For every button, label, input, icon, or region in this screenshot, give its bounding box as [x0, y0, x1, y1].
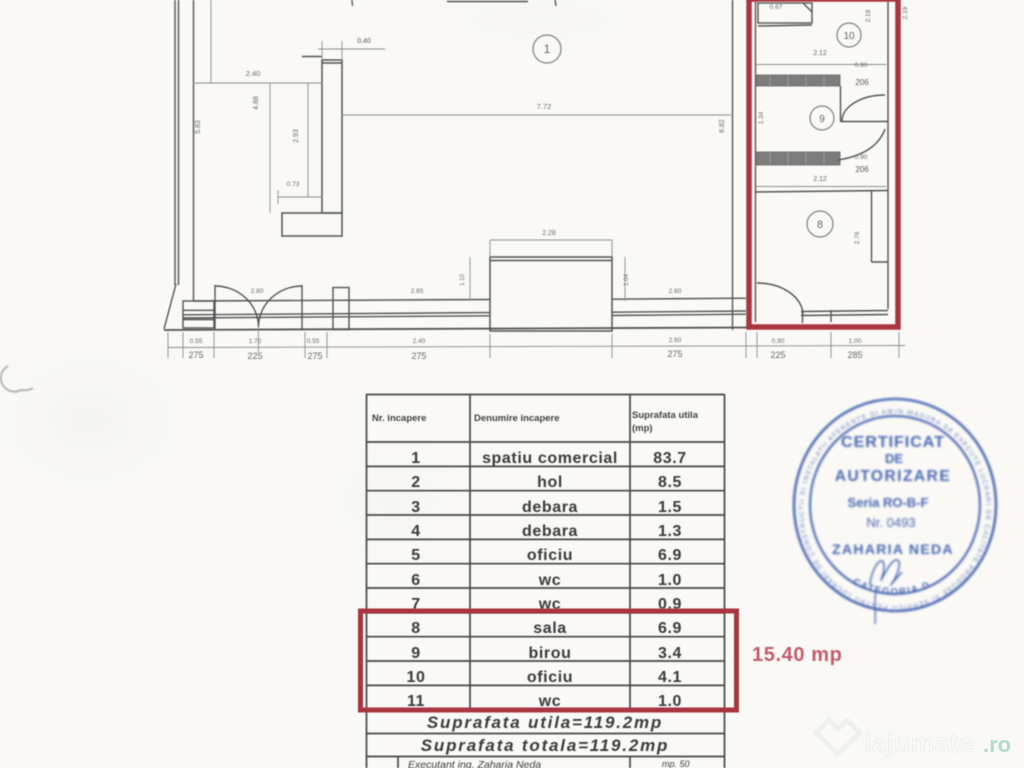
svg-text:0.55: 0.55 — [190, 338, 203, 345]
svg-text:0.73: 0.73 — [287, 181, 300, 188]
svg-text:wc: wc — [538, 572, 562, 589]
svg-text:206: 206 — [855, 165, 869, 174]
svg-text:debara: debara — [522, 499, 578, 516]
svg-text:oficiu: oficiu — [527, 547, 573, 564]
svg-text:285: 285 — [847, 350, 862, 360]
svg-text:206: 206 — [855, 78, 869, 87]
svg-text:0.90: 0.90 — [772, 338, 785, 345]
svg-text:6.82: 6.82 — [719, 119, 726, 133]
svg-text:2.12: 2.12 — [813, 176, 827, 183]
svg-text:2.60: 2.60 — [669, 337, 682, 344]
svg-text:83.7: 83.7 — [653, 450, 687, 467]
svg-text:8: 8 — [411, 620, 421, 637]
svg-text:2.40: 2.40 — [246, 69, 261, 78]
svg-text:wc: wc — [538, 693, 562, 710]
svg-text:2.19: 2.19 — [902, 6, 909, 19]
svg-text:.ro: .ro — [983, 732, 1011, 757]
svg-text:Denumire incapere: Denumire incapere — [474, 413, 560, 424]
svg-text:275: 275 — [307, 351, 322, 361]
svg-text:1.10: 1.10 — [460, 274, 466, 286]
svg-text:Suprafata utila: Suprafata utila — [632, 410, 699, 421]
svg-text:9: 9 — [819, 114, 825, 125]
svg-text:8: 8 — [817, 219, 823, 231]
svg-text:0.67: 0.67 — [770, 4, 783, 11]
svg-text:4: 4 — [411, 523, 421, 540]
svg-text:2: 2 — [411, 474, 421, 491]
svg-text:1: 1 — [411, 450, 421, 467]
svg-text:lajumate: lajumate — [864, 728, 974, 758]
svg-text:0.90: 0.90 — [855, 154, 868, 161]
svg-text:6.9: 6.9 — [658, 620, 682, 637]
svg-text:2.12: 2.12 — [813, 50, 827, 57]
svg-text:2.18: 2.18 — [865, 9, 872, 22]
svg-text:Executant ing. Zaharia Neda: Executant ing. Zaharia Neda — [408, 759, 541, 768]
svg-text:0.40: 0.40 — [357, 38, 371, 45]
svg-text:1.04: 1.04 — [624, 274, 630, 286]
svg-text:7.72: 7.72 — [537, 102, 552, 111]
svg-text:hol: hol — [537, 474, 563, 491]
svg-text:2.40: 2.40 — [413, 338, 426, 345]
svg-text:debara: debara — [522, 523, 578, 540]
svg-text:2.65: 2.65 — [411, 288, 424, 295]
svg-text:(mp): (mp) — [632, 423, 653, 434]
svg-text:9: 9 — [411, 645, 421, 662]
svg-text:2.93: 2.93 — [293, 129, 300, 143]
svg-text:4.1: 4.1 — [658, 669, 682, 686]
svg-text:1.70: 1.70 — [249, 338, 262, 345]
svg-text:1.5: 1.5 — [658, 499, 682, 516]
svg-text:2.60: 2.60 — [669, 288, 682, 295]
svg-text:4.88: 4.88 — [253, 96, 260, 110]
svg-text:275: 275 — [411, 351, 426, 361]
svg-text:1.0: 1.0 — [658, 572, 682, 589]
svg-text:225: 225 — [247, 351, 262, 361]
svg-text:0.55: 0.55 — [307, 338, 320, 345]
svg-text:mp. 50: mp. 50 — [662, 759, 690, 768]
svg-text:10: 10 — [843, 31, 855, 42]
svg-text:5.83: 5.83 — [195, 120, 202, 134]
svg-text:Nr. 0493: Nr. 0493 — [866, 515, 915, 530]
svg-text:275: 275 — [667, 349, 682, 359]
svg-text:275: 275 — [188, 350, 203, 360]
svg-text:1: 1 — [544, 42, 551, 56]
svg-text:6: 6 — [411, 572, 421, 589]
svg-text:sala: sala — [533, 620, 567, 637]
svg-text:2.80: 2.80 — [251, 288, 264, 295]
svg-text:Seria RO-B-F: Seria RO-B-F — [848, 495, 929, 510]
svg-text:2.28: 2.28 — [542, 230, 556, 237]
svg-text:15.40 mp: 15.40 mp — [752, 644, 842, 666]
svg-text:1.00: 1.00 — [849, 338, 862, 345]
svg-text:1.0: 1.0 — [658, 693, 682, 710]
svg-text:Suprafata utila=119.2mp: Suprafata utila=119.2mp — [427, 713, 663, 732]
svg-text:225: 225 — [770, 350, 785, 360]
svg-text:spatiu comercial: spatiu comercial — [482, 450, 618, 467]
svg-text:6.9: 6.9 — [658, 547, 682, 564]
svg-text:birou: birou — [529, 645, 572, 662]
svg-text:Suprafata totala=119.2mp: Suprafata totala=119.2mp — [421, 736, 669, 755]
svg-text:8.5: 8.5 — [658, 474, 682, 491]
svg-text:DE: DE — [885, 451, 903, 466]
svg-text:CERTIFICAT: CERTIFICAT — [841, 434, 945, 451]
svg-text:Nr. incapere: Nr. incapere — [372, 413, 426, 424]
svg-text:5: 5 — [411, 547, 421, 564]
svg-text:ZAHARIA NEDA: ZAHARIA NEDA — [832, 541, 954, 557]
svg-text:3.4: 3.4 — [658, 645, 682, 662]
svg-text:1.3: 1.3 — [658, 523, 682, 540]
svg-text:AUTORIZARE: AUTORIZARE — [835, 468, 951, 485]
svg-text:oficiu: oficiu — [527, 669, 573, 686]
svg-text:10: 10 — [407, 669, 426, 686]
svg-text:2.76: 2.76 — [854, 231, 861, 244]
svg-text:3: 3 — [411, 499, 421, 516]
svg-text:11: 11 — [407, 693, 425, 710]
svg-text:1.34: 1.34 — [758, 111, 765, 124]
svg-text:0.90: 0.90 — [855, 62, 868, 69]
